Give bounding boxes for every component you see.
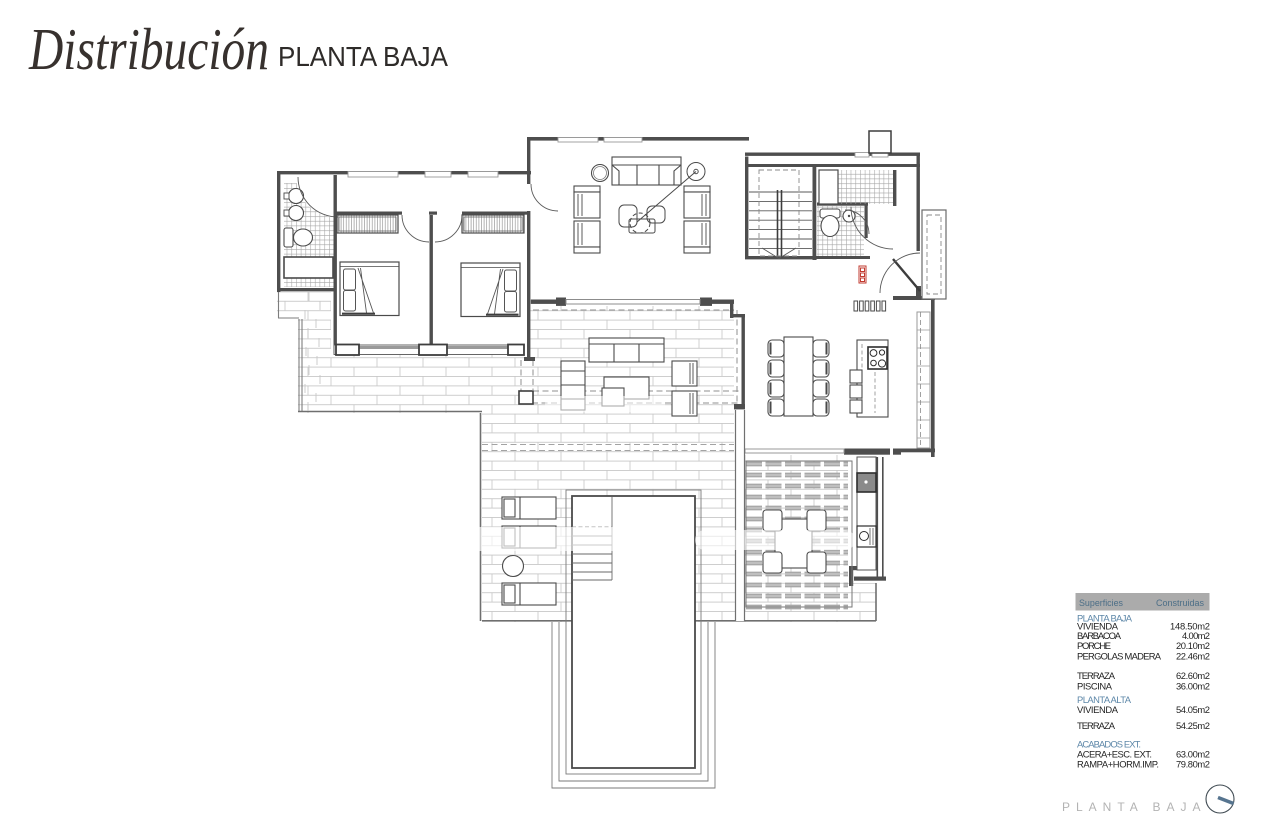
- svg-text:VIVIENDA: VIVIENDA: [1077, 704, 1119, 715]
- svg-text:RAMPA+HORM.IMP.: RAMPA+HORM.IMP.: [1077, 759, 1159, 770]
- svg-text:54.25m2: 54.25m2: [1176, 720, 1210, 731]
- svg-text:Superficies: Superficies: [1079, 598, 1123, 609]
- svg-text:PLANTA BAJA: PLANTA BAJA: [278, 41, 449, 72]
- svg-text:TERRAZA: TERRAZA: [1077, 670, 1116, 681]
- svg-text:PORCHE: PORCHE: [1077, 640, 1111, 651]
- svg-text:Distribución: Distribución: [28, 16, 269, 82]
- svg-text:22.46m2: 22.46m2: [1176, 651, 1210, 662]
- svg-text:PISCINA: PISCINA: [1077, 681, 1113, 692]
- svg-text:Construidas: Construidas: [1156, 598, 1204, 609]
- svg-text:20.10m2: 20.10m2: [1176, 640, 1210, 651]
- svg-text:54.05m2: 54.05m2: [1176, 704, 1210, 715]
- svg-text:PLANTA BAJA: PLANTA BAJA: [1062, 800, 1206, 814]
- svg-text:PERGOLAS MADERA: PERGOLAS MADERA: [1077, 651, 1162, 662]
- svg-text:79.80m2: 79.80m2: [1176, 759, 1210, 770]
- svg-text:TERRAZA: TERRAZA: [1077, 720, 1116, 731]
- svg-text:62.60m2: 62.60m2: [1176, 670, 1210, 681]
- svg-text:36.00m2: 36.00m2: [1176, 681, 1210, 692]
